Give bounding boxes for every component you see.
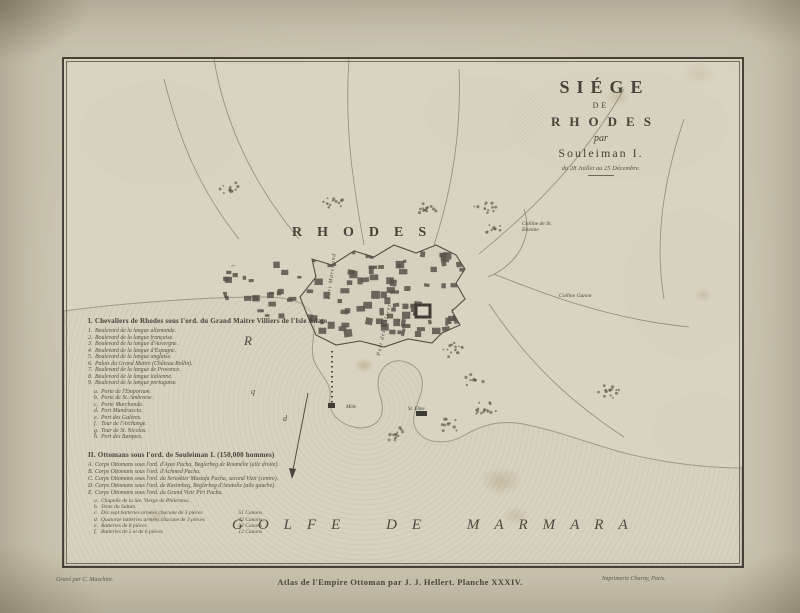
st-elme-label: St. Elme (408, 407, 425, 412)
plate-caption: Atlas de l'Empire Ottoman par J. J. Hell… (0, 577, 800, 587)
legend-line: f.Batteries de 5 et de 6 pièces12 Canons (94, 529, 262, 535)
legend-knights-header: I. Chevaliers de Rhodes sous l'ord. du G… (88, 317, 303, 325)
legend-knights-items: 1.Boulevard de la langue allemande.2.Bou… (88, 328, 303, 387)
printer-credit: Imprimerie Charny, Paris. (602, 576, 666, 582)
legend-knights: I. Chevaliers de Rhodes sous l'ord. du G… (88, 317, 303, 441)
city-label: RHODES (292, 225, 441, 241)
title-souleiman: Souleiman I. (515, 146, 687, 161)
legend-line: B.Corps Ottomans sous l'ord. d'Achmed Pa… (88, 469, 303, 476)
citadel-keep (416, 305, 430, 317)
mole-fort (328, 403, 335, 408)
legend-line: E.Corps Ottomans sous l'ord. du Grand Vi… (88, 490, 303, 497)
legend-line: 9.Boulevard de la langue portugaise. (88, 380, 303, 387)
title-rule (588, 175, 614, 179)
hill-gunon-label: Colline Gunon (559, 293, 592, 299)
legend-line: C.Corps Ottomans sous l'ord. du Seraskie… (88, 476, 303, 483)
legend-ottomans-notes: a.Chapelle de la Ste. Vierge de Philermo… (94, 498, 303, 535)
legend-line: h.Port des Barques. (94, 434, 303, 441)
mole-label: Môle (346, 405, 356, 410)
legend-knights-gates: a.Porte de l'Emporium.b.Porte de St. Amb… (94, 389, 303, 441)
title-cartouche: SIÉGE DE RHODES par Souleiman I. du 28 J… (515, 77, 687, 179)
legend-ottomans: II. Ottomans sous l'ord. de Souleiman I.… (88, 451, 303, 535)
map-title: SIÉGE (515, 77, 687, 98)
legend-line: A.Corps Ottomans sous l'ord. d'Ayas Pach… (88, 462, 303, 469)
legend-ottomans-header: II. Ottomans sous l'ord. de Souleiman I.… (88, 451, 303, 459)
title-dates: du 28 Juillet au 25 Décembre. (515, 165, 687, 172)
title-de: DE (515, 101, 687, 110)
legend-ottomans-corps: A.Corps Ottomans sous l'ord. d'Ayas Pach… (88, 462, 303, 497)
map-frame: SIÉGE DE RHODES par Souleiman I. du 28 J… (62, 57, 744, 568)
map-interior: SIÉGE DE RHODES par Souleiman I. du 28 J… (64, 59, 742, 566)
legend-line: D.Corps Ottomans sous l'ord. de Kasimbeg… (88, 483, 303, 490)
title-rhodes: RHODES (515, 114, 687, 130)
hill-st-etienne-label: Colline de St. Etienne (522, 221, 564, 233)
title-par: par (515, 133, 687, 144)
